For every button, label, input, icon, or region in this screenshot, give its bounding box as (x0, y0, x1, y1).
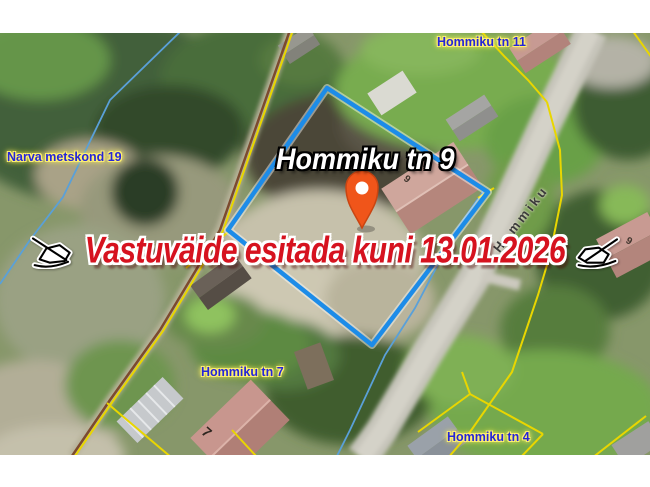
label-narva-metskond-19: Narva metskond 19 (7, 150, 122, 164)
signature-pen-icon (28, 233, 78, 269)
label-hommiku-tn-4: Hommiku tn 4 (447, 430, 530, 444)
label-hommiku-tn-7: Hommiku tn 7 (201, 365, 284, 379)
objection-deadline-banner: Vastuväide esitada kuni 13.01.2026 (0, 227, 650, 275)
page-title: Hommiku tn 9 (276, 143, 455, 176)
label-hommiku-tn-11: Hommiku tn 11 (437, 35, 526, 49)
map-screenshot: Narva metskond 19 Hommiku tn 11 Hommiku … (0, 0, 650, 487)
signature-pen-icon (572, 233, 622, 269)
objection-deadline-text: Vastuväide esitada kuni 13.01.2026 (85, 230, 566, 273)
